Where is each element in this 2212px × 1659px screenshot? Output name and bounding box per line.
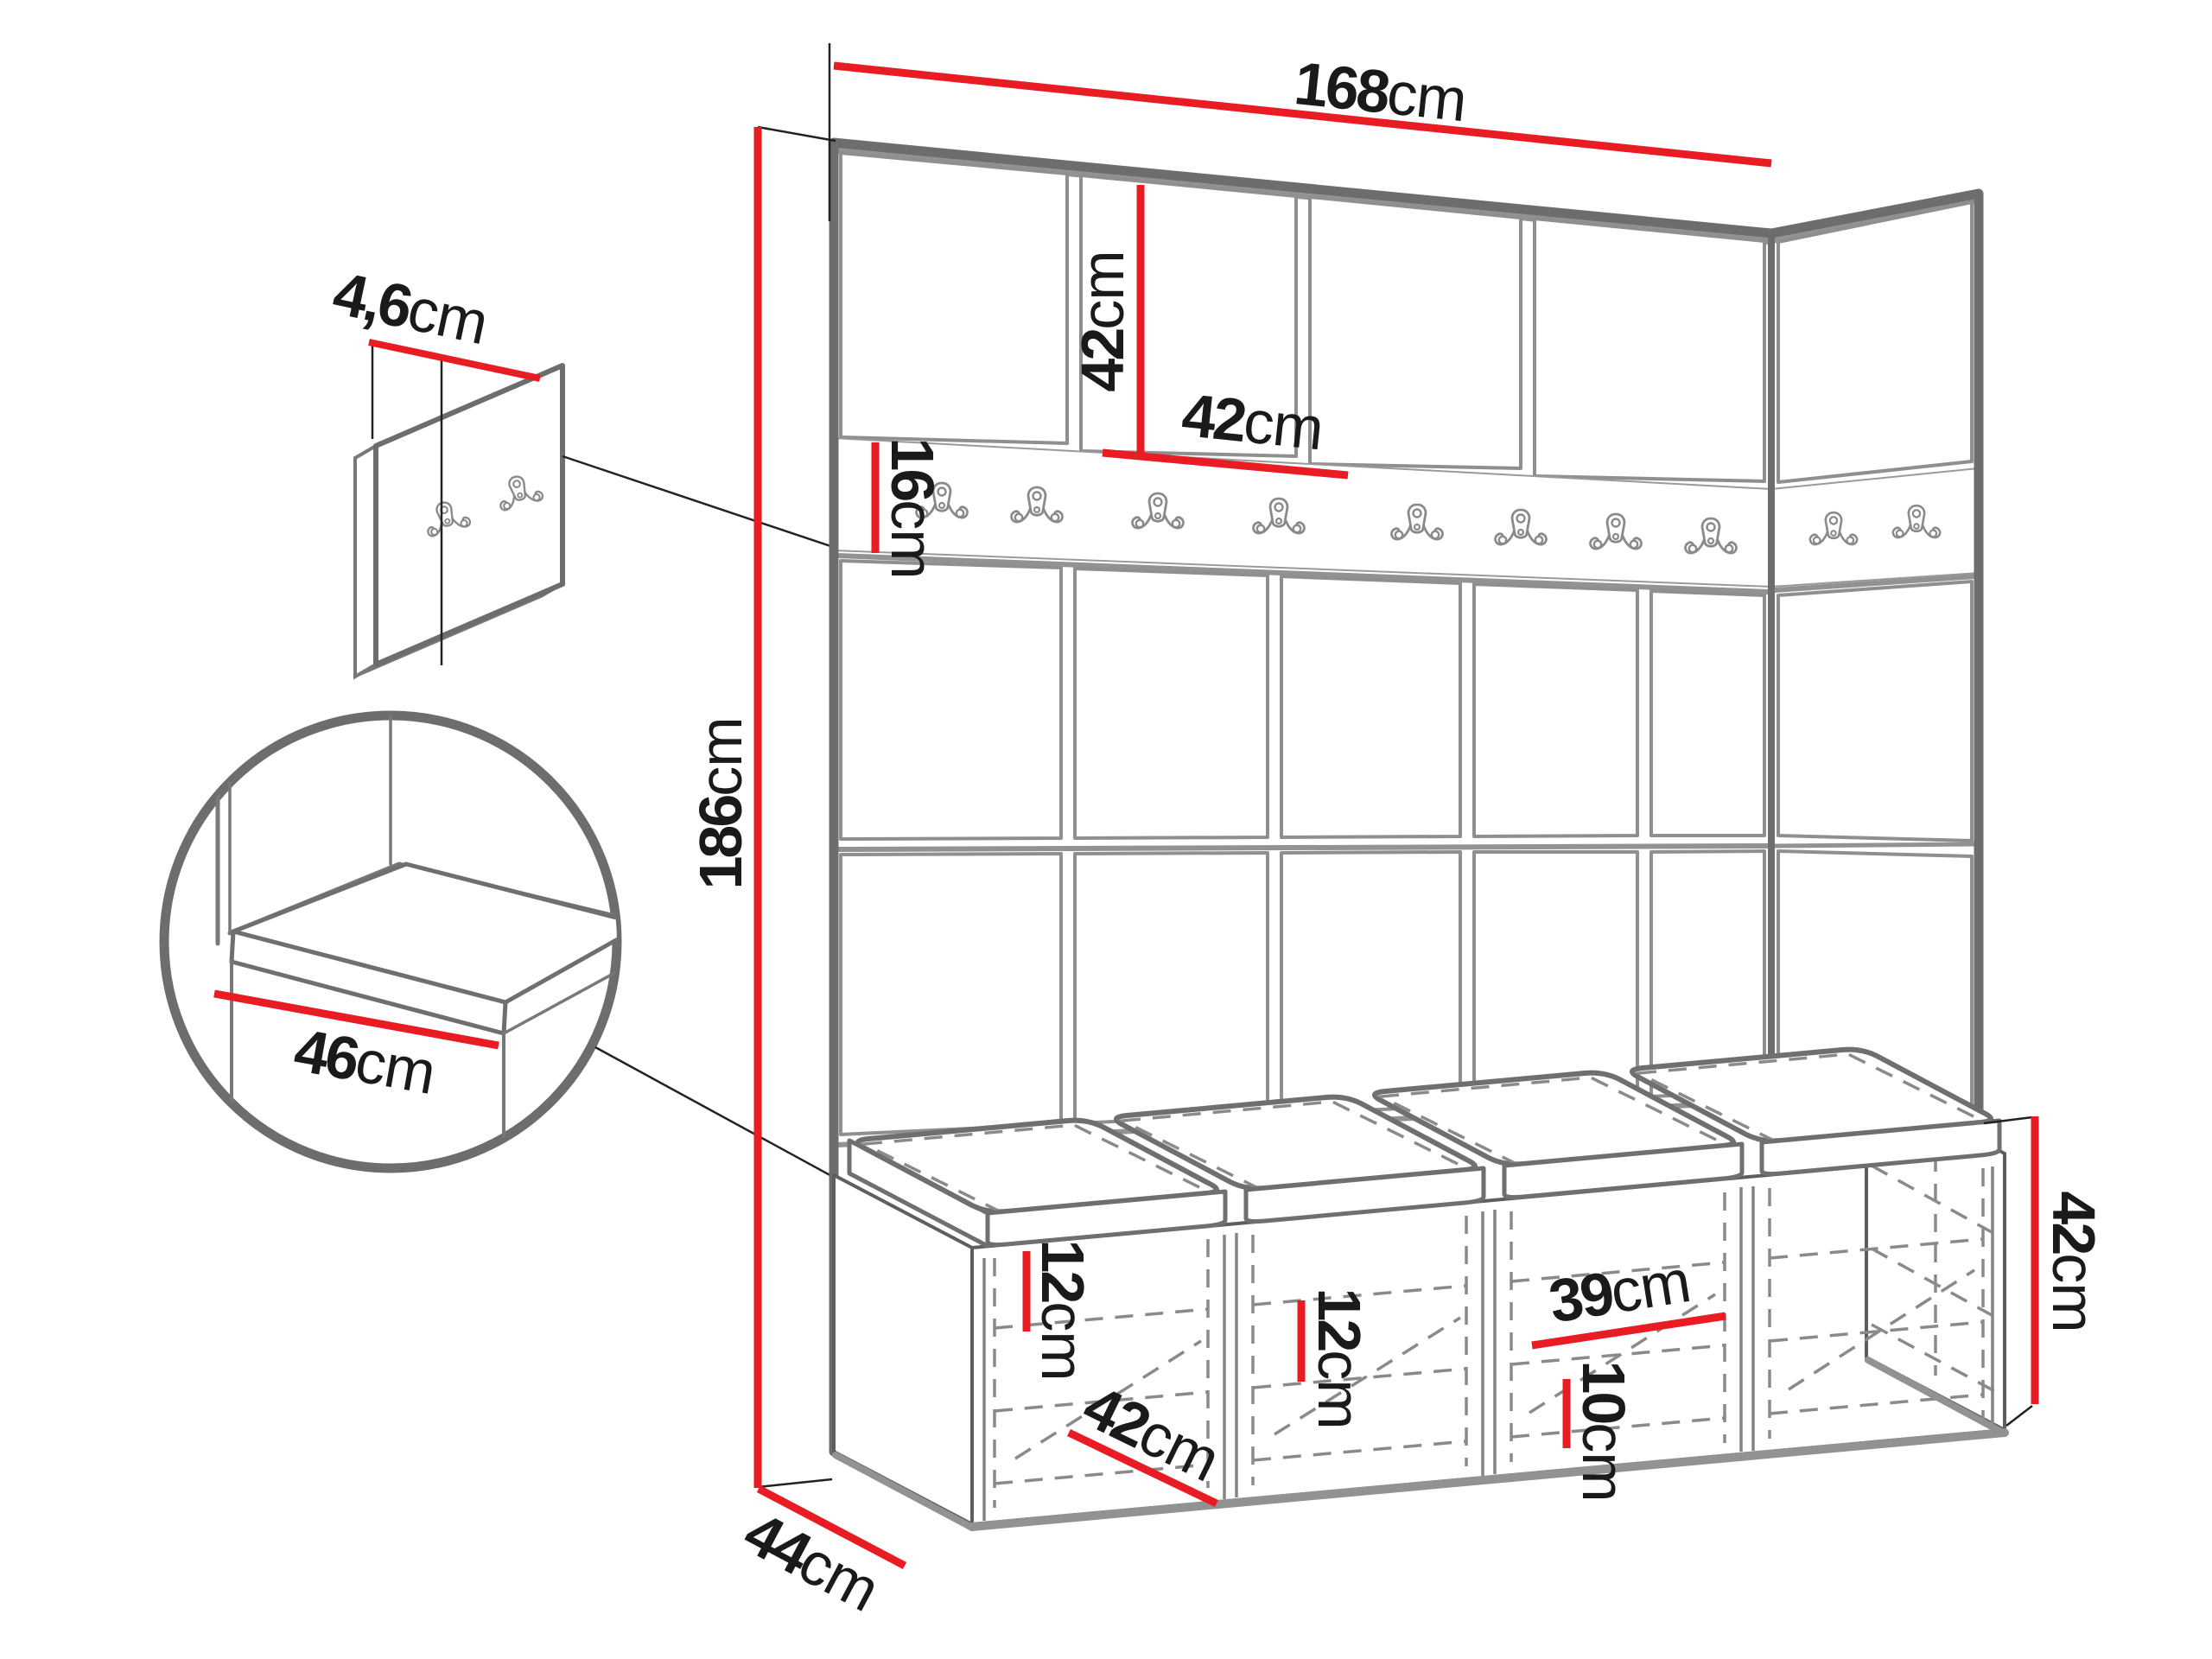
hook-panel-detail [355, 344, 851, 677]
dim-label-total-width: 168cm [1291, 49, 1469, 134]
dim-rail-height: 16cm [875, 437, 946, 578]
leader-line-to-rail [563, 456, 851, 553]
dim-label-bench-height: 42cm [2040, 1191, 2107, 1332]
upholstered-panel [1281, 852, 1460, 1114]
extension-line [758, 1479, 832, 1487]
dim-label-rail-height: 16cm [879, 437, 946, 578]
upholstered-panel [841, 153, 1067, 443]
return-rail-face [1771, 468, 1979, 587]
dim-label-shelf-gap-left: 12cm [1029, 1239, 1096, 1380]
dim-shelf-gap-middle: 12cm [1301, 1287, 1373, 1428]
dim-label-wall-panel-thickness: 4,6cm [327, 259, 493, 358]
panel-row-middle [841, 561, 1764, 839]
upholstered-panel [1281, 576, 1460, 837]
diagram-canvas: 168cm 186cm 42cm 42cm 16cm 4,6cm 46cm [0, 0, 2212, 1659]
upholstered-panel [1778, 582, 1972, 841]
upholstered-panel [1651, 591, 1764, 836]
hook-panel-side-face [355, 446, 376, 677]
dim-label-shelf-gap-middle: 12cm [1306, 1287, 1373, 1428]
dim-total-height: 186cm [687, 127, 836, 1488]
row-shadow [837, 846, 1768, 849]
row-shadow [1775, 844, 1975, 846]
dim-label-total-height: 186cm [687, 717, 754, 889]
dim-label-plinth-height: 10cm [1570, 1360, 1637, 1501]
diagram-page: 168cm 186cm 42cm 42cm 16cm 4,6cm 46cm [0, 0, 2212, 1659]
upholstered-panel [1310, 197, 1521, 468]
upholstered-panel [1075, 853, 1268, 1123]
hook-panel-front-face [376, 365, 563, 664]
extension-line [758, 127, 836, 141]
dim-unit-depth: 44cm [734, 1489, 905, 1624]
extension-line [2006, 1406, 2032, 1426]
dim-label-panel-height: 42cm [1069, 251, 1136, 391]
upholstered-panel [1474, 584, 1637, 836]
upholstered-panel [1778, 202, 1972, 482]
upholstered-panel [841, 561, 1061, 839]
upholstered-panel [1535, 219, 1764, 481]
upholstered-panel [1474, 852, 1637, 1105]
dim-plinth-height: 10cm [1567, 1360, 1637, 1501]
dim-wall-panel-thickness: 4,6cm [327, 259, 540, 378]
upholstered-panel [841, 854, 1061, 1135]
dim-shelf-gap-left: 12cm [1027, 1239, 1096, 1380]
upholstered-panel [1075, 569, 1268, 838]
